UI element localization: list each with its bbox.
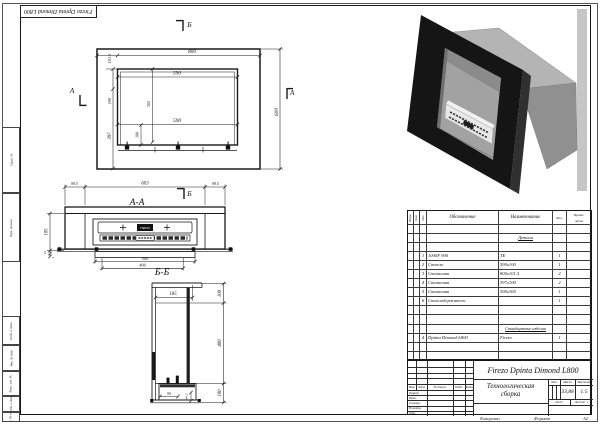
dim-500: 500 [142, 256, 149, 261]
spec-col-note: Приме- чание [567, 211, 591, 225]
spec-row: 3Стемалит800х101.52 [408, 270, 591, 279]
firebox-housing-side [521, 83, 577, 169]
section-bb-title: Б-Б [154, 268, 170, 278]
lit-label: Лит. [548, 379, 560, 385]
spec-section-standard: Стандартные изделия [408, 325, 591, 334]
footer-copied: Копировал [455, 416, 525, 421]
dim-603: 603 [141, 181, 149, 186]
burner-brand-label: FIREZO [139, 227, 150, 230]
spec-section-details: Детали [408, 234, 591, 243]
dim-98_5-r: 98.5 [212, 182, 219, 186]
dim-800: 800 [188, 49, 196, 55]
spec-col-qty: Кол. [553, 211, 567, 225]
dim-590-top: 590 [173, 71, 181, 77]
dim-406: 406 [139, 263, 146, 268]
dim-100-inner: 100 [136, 132, 140, 138]
dim-590-bot: 590 [173, 118, 181, 124]
section-aa-view: А-А Б 98.5 603 98.5 FIREZO [43, 181, 233, 270]
marker-a-left: А [69, 86, 75, 95]
back-wall-section [187, 288, 190, 384]
spec-row: 6Стеклодержатель1 [408, 297, 591, 306]
doc-name: Firezo Dpinta Dimond L800 [473, 361, 593, 379]
sheet-label: Лист [548, 399, 570, 405]
dim-90: 90 [167, 392, 171, 396]
marker-a-right: А [289, 88, 295, 97]
dim-365: 365 [146, 100, 151, 107]
footer-format-value: А2 [583, 416, 588, 421]
sheets-count: Листов1 [570, 399, 593, 405]
spec-col-name: Наименование [499, 211, 553, 225]
dim-397: 397 [108, 132, 113, 140]
spec-header-row: Форм. Зона Поз. Обозначение Наименование… [408, 211, 591, 225]
dim-100-top: 100 [218, 289, 223, 297]
dim-185-aa: 185 [45, 228, 50, 236]
spec-col-designation: Обозначение [427, 211, 499, 225]
drawing-sheet: Firezo Dpinta Dimond L800 Справ. № Перв.… [0, 0, 600, 424]
spec-row: 4Dpinta Dimond-L800Firezo1 [408, 334, 591, 343]
spec-row: 4Стемалит397х1002 [408, 279, 591, 288]
scale-value: 1:5 [575, 385, 593, 399]
dim-400: 400 [218, 339, 223, 347]
dim-600: 600 [274, 108, 280, 116]
title-block: Изм. Лист № докум. Подп. Дата Разраб. Пр… [407, 360, 592, 415]
marker-b-aa: Б [186, 189, 192, 198]
rev-col-doc: № докум. [427, 384, 453, 390]
sign-row-approved: Утв. [408, 411, 428, 416]
rev-col-date: Дата [465, 384, 473, 390]
spec-row: 2Стекло590х1001 [408, 261, 591, 270]
dim-100-left: 100 [107, 97, 112, 104]
dim-5: 5 [51, 256, 55, 258]
render-3d [407, 9, 587, 194]
mass-value: 33,88 [560, 385, 575, 399]
dim-40_5: 40.5 [185, 393, 189, 399]
dim-98_5-l: 98.5 [71, 182, 78, 186]
dim-101_5: 101.5 [107, 53, 112, 64]
footer-format: ФорматА2 [534, 416, 588, 421]
dim-185-bb: 185 [169, 292, 177, 297]
spec-row: 5Стемалит590х3651 [408, 288, 591, 297]
spec-row: 11000F 900ТЕ1 [408, 252, 591, 261]
spec-table: Форм. Зона Поз. Обозначение Наименование… [407, 210, 592, 360]
dim-15: 15 [43, 251, 47, 255]
section-bb-view: Б-Б 185 100 400 100 [150, 268, 227, 404]
marker-b-top: Б [186, 20, 192, 29]
dim-100-bot: 100 [218, 389, 223, 397]
doc-type: Технологическаясборка [473, 380, 548, 402]
render-backdrop [577, 9, 587, 191]
front-view: 800 101.5 590 590 600 100 397 365 100 Б … [69, 20, 295, 171]
rev-col-sign: Подп. [453, 384, 465, 390]
